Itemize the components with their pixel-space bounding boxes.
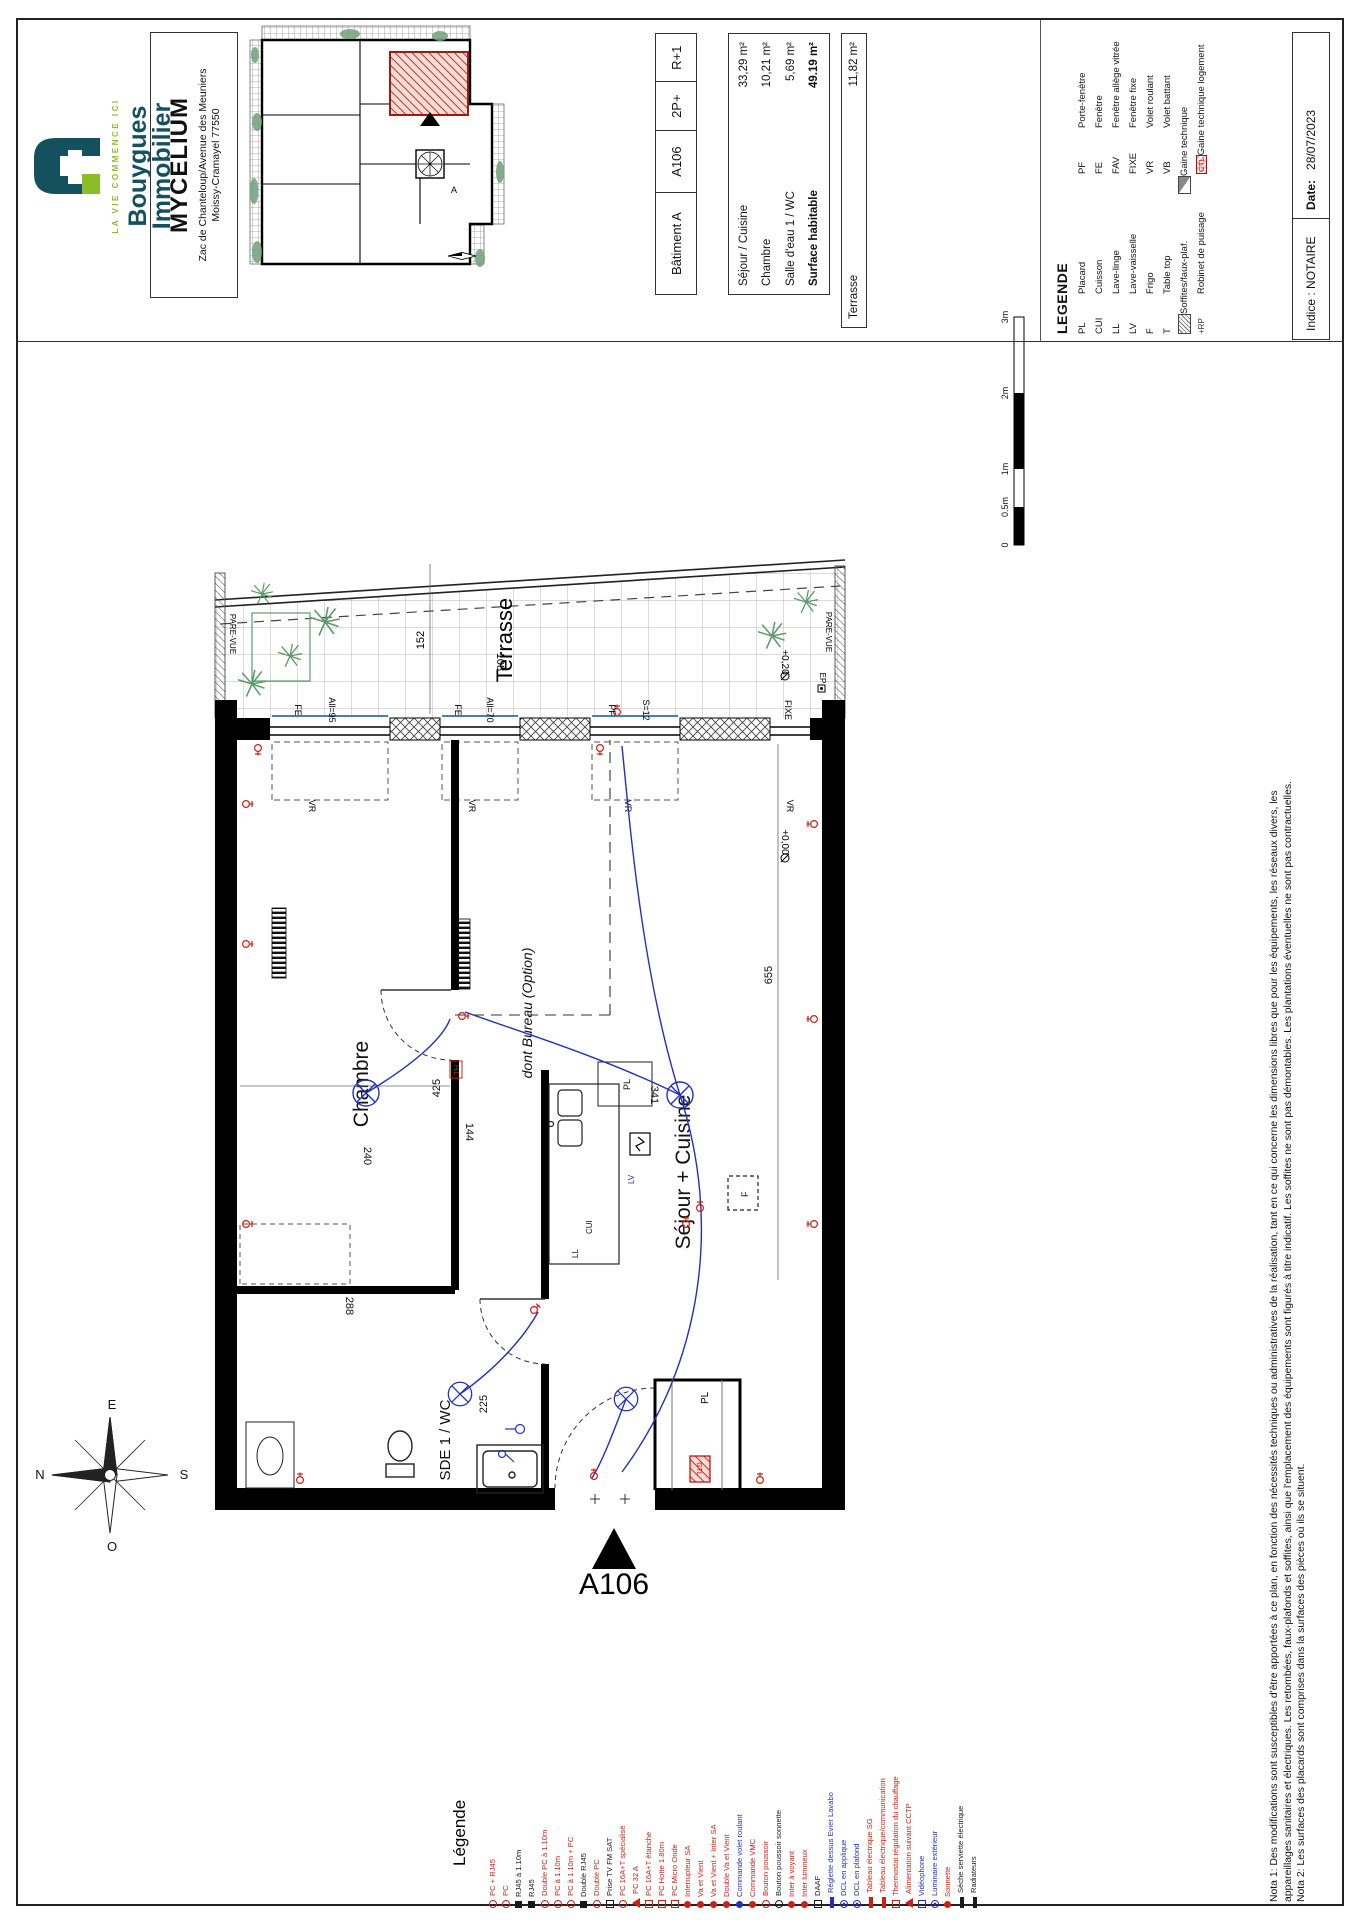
electrical-item-label: RJ45 [527,1879,536,1897]
electrical-symbol-icon [723,1901,730,1908]
bouygues-b-icon [30,134,109,198]
area-row: Chambre 10,21 m² [761,34,773,294]
electrical-symbol-icon [580,1901,587,1908]
electrical-item-label: Alimentation suivant CCTP [904,1803,913,1894]
electrical-item-label: PC Micro Onde [670,1844,679,1896]
electrical-item-label: Va et Vient [696,1861,705,1897]
project-title-box: MYCELIUM Zac de Chanteloup/Avenue des Me… [150,32,238,298]
electrical-legend-item: Alimentation suivant CCTP [902,1550,915,1910]
electrical-item-label: Double PC à 1.10m [540,1830,549,1896]
electrical-item-label: Luminaire extérieur [930,1831,939,1896]
legend-row: Soffites/faux-plaf. Gaine technique [1176,22,1193,334]
electrical-legend-item: Double PC à 1.10m [538,1550,551,1910]
electrical-item-label: Commande volet roulant [735,1814,744,1897]
electrical-symbol-icon [892,1900,900,1908]
electrical-legend-item: Commande volet roulant [733,1550,746,1910]
floorplan-sheet-page: { "branding": { "name_line1": "Bouygues"… [0,0,1360,1924]
electrical-item-label: Tableau électrique/communication [878,1778,887,1893]
electrical-symbol-icon [593,1900,601,1908]
electrical-symbol-icon [960,1897,964,1908]
titleblock-divider [1040,20,1041,342]
project-name: MYCELIUM [166,33,194,297]
electrical-symbol-icon [853,1900,861,1908]
electrical-item-label: Double RJ45 [579,1853,588,1897]
electrical-symbol-icon [869,1897,873,1908]
electrical-symbol-icon [489,1900,497,1908]
project-address: Zac de Chanteloup/Avenue des Meuniers Mo… [197,33,223,297]
area-label: Séjour / Cuisine [738,205,750,286]
unit-building: Bâtiment A [655,192,697,295]
electrical-item-label: PC [501,1885,510,1896]
electrical-legend-item: Bouton poussoir sonnette [772,1550,785,1910]
electrical-item-label: PC + RJ45 [488,1859,497,1896]
electrical-symbol-icon [658,1900,666,1908]
electrical-symbol-icon [502,1900,510,1908]
electrical-symbol-icon [973,1897,977,1908]
electrical-symbol-icon [645,1900,653,1908]
electrical-legend-item: Thermostat régulation du chauffage [889,1550,902,1910]
unit-floor: R+1 [655,33,697,81]
electrical-legend-item: Interrupteur SA [681,1550,694,1910]
unit-type: 2P+ [655,81,697,129]
area-label: Surface habitable [808,190,820,286]
electrical-item-label: Prise TV FM SAT [605,1838,614,1896]
developer-logo: LA VIE COMMENCE ICI Bouygues Immobilier [30,20,146,312]
electrical-legend-item: RJ45 [525,1550,538,1910]
electrical-legend-title: Légende [450,1800,470,1866]
electrical-symbol-icon [814,1900,822,1908]
legend-row: LL Lave-linge FAV Fenêtre allège vitrée [1108,22,1125,334]
revision-bar: Indice : NOTAIRE Date: 28/07/2023 [1292,32,1330,340]
electrical-legend-item: PC à 1.10m [551,1550,564,1910]
electrical-legend-item: Inter à voyant [785,1550,798,1910]
legend-row: CUI Cuisson FE Fenêtre [1091,22,1108,334]
legend-row: T Table top VB Volet battant [1159,22,1176,334]
legend-row: +RP Robinet de puisage GTL Gaine techniq… [1193,22,1210,334]
area-label: Chambre [761,239,773,286]
electrical-symbol-icon [671,1900,679,1908]
electrical-symbol-icon [541,1900,549,1908]
rotated-sheet: 152 108 Terrasse PARE-VUE PARE-VUE +0,20… [0,0,1360,1924]
electrical-legend-item: PC 16A+T étanche [642,1550,655,1910]
area-value: 33,29 m² [738,42,750,87]
electrical-symbol-icon [606,1900,614,1908]
terrace-label: Terrasse [848,275,860,319]
electrical-item-label: Inter lumineux [800,1849,809,1897]
unit-number: A106 [655,130,697,192]
electrical-legend-item: DAAF [811,1550,824,1910]
electrical-legend-item: Double Va et Vient [720,1550,733,1910]
electrical-symbol-icon [619,1900,627,1908]
electrical-item-label: Commande VMC [748,1839,757,1897]
electrical-symbol-icon [697,1901,704,1908]
electrical-legend-item: Double RJ45 [577,1550,590,1910]
area-row: Séjour / Cuisine 33,29 m² [738,34,750,294]
unit-info-table: Bâtiment A A106 2P+ R+1 [655,33,697,295]
titleblock-separator [16,341,1344,342]
electrical-item-label: Va et Vient + Inter SA [709,1824,718,1897]
electrical-item-label: Bouton poussoir [761,1841,770,1896]
electrical-symbol-icon [830,1897,834,1908]
terrace-value: 11,82 m² [848,42,860,87]
legend-row: PL Placard PF Porte-fenêtre [1074,22,1091,334]
revision-indice: Indice : NOTAIRE [1292,218,1330,340]
electrical-item-label: RJ45 à 1.10m [514,1850,523,1897]
revision-date: Date: 28/07/2023 [1292,32,1330,218]
electrical-item-label: Tableau électrique SG [865,1818,874,1893]
areas-table: Séjour / Cuisine 33,29 m² Chambre 10,21 … [728,33,830,295]
electrical-item-label: PC 32 A [631,1866,640,1894]
electrical-legend-item: Tableau électrique SG [863,1550,876,1910]
electrical-legend-item: Va et Vient [694,1550,707,1910]
electrical-item-label: Sonnette [943,1867,952,1897]
electrical-legend-item: PC à 1.10m + PC [564,1550,577,1910]
electrical-legend-item: Va et Vient + Inter SA [707,1550,720,1910]
electrical-legend-item: Tableau électrique/communication [876,1550,889,1910]
electrical-symbol-icon [801,1901,808,1908]
electrical-item-label: PC à 1.10m + PC [566,1837,575,1896]
nota-text: Nota 1: Des modifications sont susceptib… [1268,350,1309,1902]
electrical-item-label: PC 16A+T étanche [644,1832,653,1896]
electrical-legend-item: PC 16A+T spécialisé [616,1550,629,1910]
electrical-legend-item: Bouton poussoir [759,1550,772,1910]
electrical-symbol-icon [775,1900,783,1908]
electrical-symbol-icon [684,1901,691,1908]
electrical-legend-item: RJ45 à 1.10m [512,1550,525,1910]
electrical-symbol-icon [567,1900,575,1908]
electrical-legend-item: Double PC [590,1550,603,1910]
electrical-symbol-icon [528,1901,535,1908]
electrical-symbol-icon [788,1901,795,1908]
legend-row: LV Lave-vaisselle FIXE Fenêtre fixe [1125,22,1142,334]
electrical-legend-item: Sèche serviette électrique [954,1550,967,1910]
electrical-legend-item: PC + RJ45 [486,1550,499,1910]
electrical-legend-item: DCL en plafond [850,1550,863,1910]
electrical-legend: PC + RJ45 PC RJ45 à 1.10m RJ45 Double PC… [486,1550,980,1910]
electrical-legend-item: Prise TV FM SAT [603,1550,616,1910]
nota-line-3: Nota 2: Les surfaces des placards sont c… [1295,350,1309,1902]
electrical-symbol-icon [554,1900,562,1908]
area-value: 5,69 m² [785,42,797,81]
electrical-legend-item: Commande VMC [746,1550,759,1910]
electrical-symbol-icon [882,1897,886,1908]
electrical-legend-item: Luminaire extérieur [928,1550,941,1910]
area-value: 49.19 m² [808,42,820,88]
electrical-symbol-icon [749,1901,756,1908]
electrical-legend-item: Réglette dessus Evier Lavabo [824,1550,837,1910]
electrical-item-label: Thermostat régulation du chauffage [891,1776,900,1896]
electrical-symbol-icon [710,1901,717,1908]
electrical-legend-item: PC Hotte 1.80m [655,1550,668,1910]
electrical-item-label: Inter à voyant [787,1851,796,1897]
legend-row: F Frigo VR Volet roulant [1142,22,1159,334]
electrical-legend-item: Inter lumineux [798,1550,811,1910]
electrical-item-label: Vidéophone [917,1856,926,1896]
electrical-legend-item: PC Micro Onde [668,1550,681,1910]
electrical-symbol-icon [515,1901,522,1908]
electrical-symbol-icon [632,1898,640,1908]
electrical-symbol-icon [905,1898,913,1908]
electrical-symbol-icon [840,1900,848,1908]
legend-rows: PL Placard PF Porte-fenêtre CUI Cuisson … [1074,22,1210,334]
electrical-item-label: Double PC [592,1859,601,1896]
electrical-symbol-icon [931,1900,939,1908]
electrical-item-label: Réglette dessus Evier Lavabo [826,1792,835,1893]
area-value: 10,21 m² [761,42,773,87]
brand-tagline: LA VIE COMMENCE ICI [111,20,120,312]
electrical-item-label: PC 16A+T spécialisé [618,1825,627,1896]
electrical-item-label: Double Va et Vient [722,1834,731,1897]
nota-line-1: Nota 1: Des modifications sont susceptib… [1268,350,1282,1902]
electrical-item-label: DCL en applique [839,1840,848,1896]
electrical-item-label: PC Hotte 1.80m [657,1842,666,1896]
terrace-area-row: Terrasse 11,82 m² [841,33,867,328]
electrical-item-label: Bouton poussoir sonnette [774,1810,783,1896]
area-label: Salle d'eau 1 / WC [785,191,797,286]
electrical-legend-item: Radiateurs [967,1550,980,1910]
electrical-item-label: DAAF [813,1876,822,1896]
electrical-legend-item: PC [499,1550,512,1910]
electrical-item-label: Interrupteur SA [683,1846,692,1898]
electrical-legend-item: Vidéophone [915,1550,928,1910]
abbreviation-legend: LEGENDE PL Placard PF Porte-fenêtre CUI … [1054,22,1210,334]
electrical-legend-item: Sonnette [941,1550,954,1910]
electrical-item-label: PC à 1.10m [553,1856,562,1896]
electrical-legend-item: PC 32 A [629,1550,642,1910]
area-row: Salle d'eau 1 / WC 5,69 m² [785,34,797,294]
electrical-item-label: Sèche serviette électrique [956,1806,965,1893]
electrical-item-label: Radiateurs [969,1856,978,1893]
electrical-symbol-icon [944,1901,951,1908]
legend-title: LEGENDE [1054,22,1070,334]
electrical-legend-item: DCL en applique [837,1550,850,1910]
electrical-symbol-icon [736,1901,743,1908]
electrical-item-label: DCL en plafond [852,1844,861,1897]
nota-line-2: appareillages sanitaires et électriques.… [1282,350,1296,1902]
electrical-symbol-icon [762,1900,770,1908]
electrical-symbol-icon [918,1900,926,1908]
area-row: Surface habitable 49.19 m² [808,34,820,294]
